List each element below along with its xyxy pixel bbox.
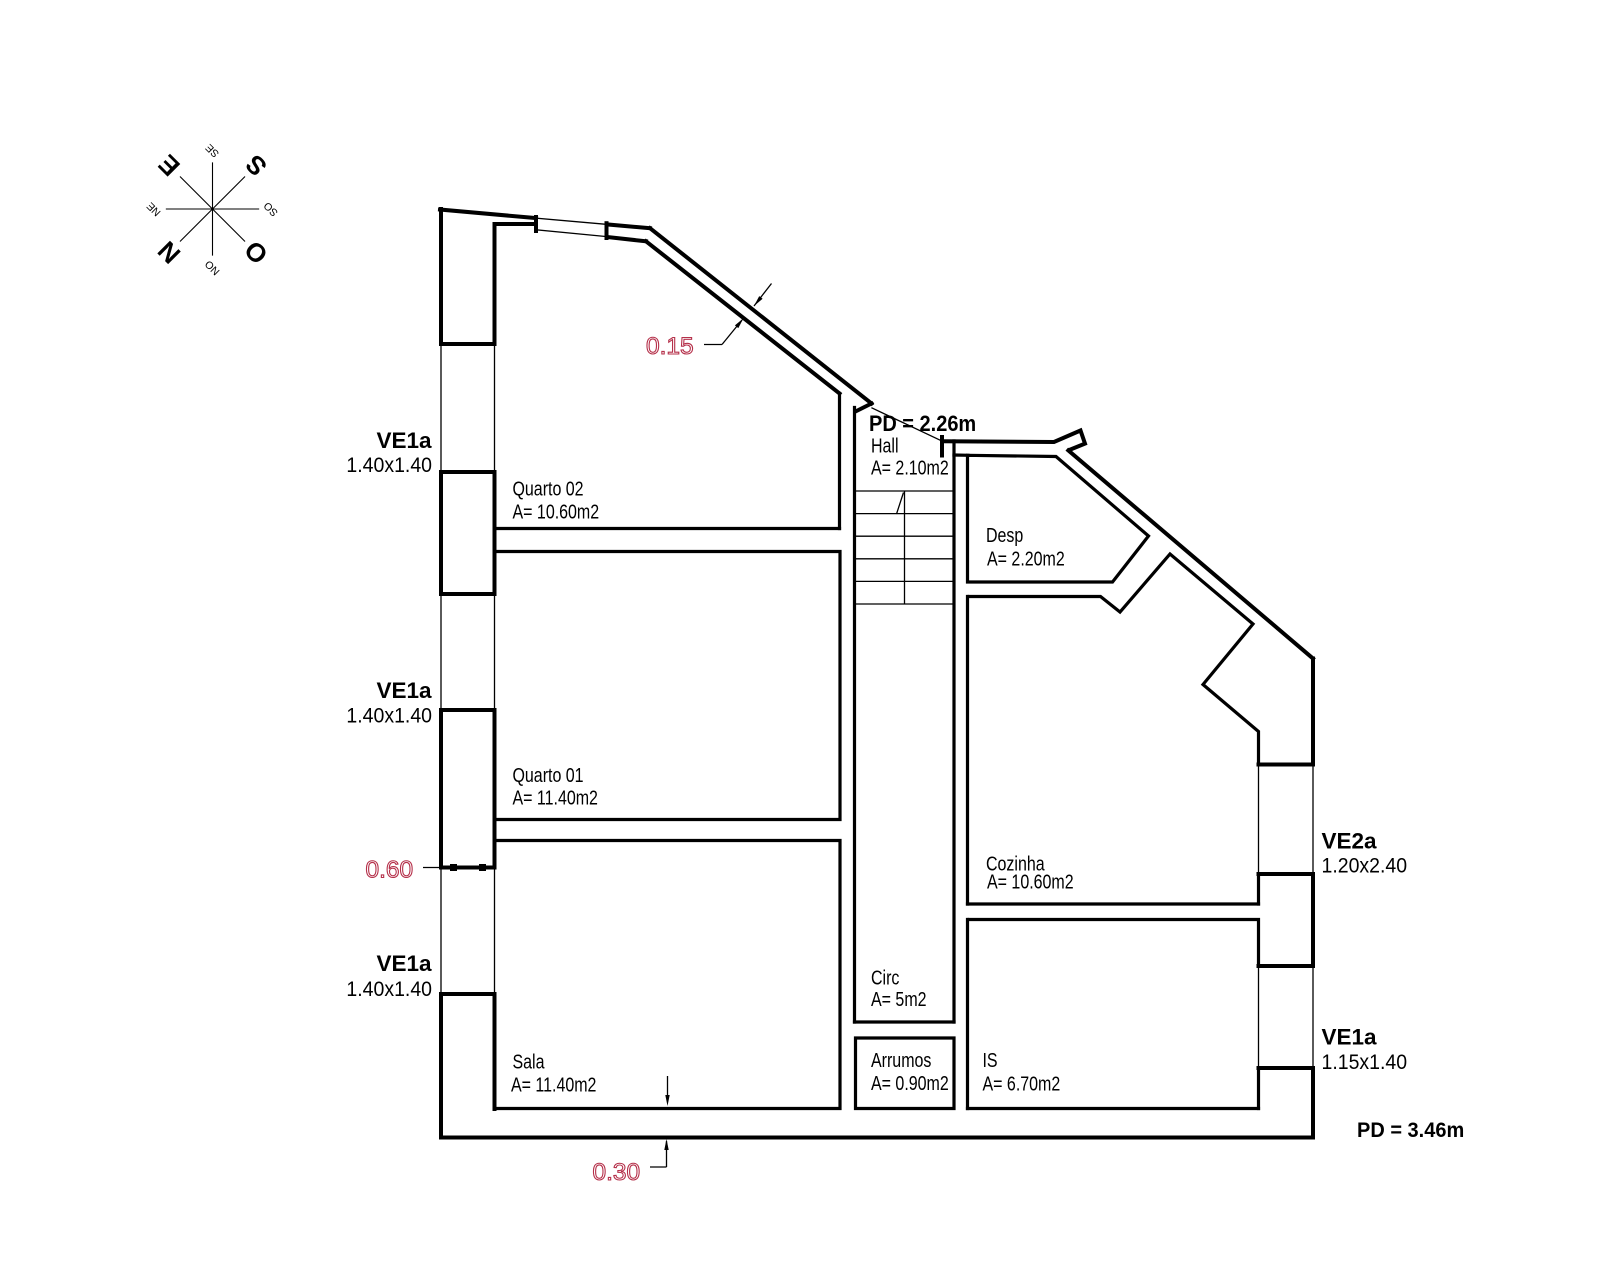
svg-text:A= 5m2: A= 5m2 [871,987,927,1010]
svg-text:PD = 3.46m: PD = 3.46m [1357,1119,1464,1143]
svg-text:0.15: 0.15 [646,333,694,360]
svg-text:Circ: Circ [871,966,899,989]
svg-text:1.40x1.40: 1.40x1.40 [346,453,432,477]
svg-text:A= 2.20m2: A= 2.20m2 [987,547,1065,570]
svg-text:Sala: Sala [513,1050,546,1073]
svg-text:A= 0.90m2: A= 0.90m2 [871,1071,949,1094]
svg-text:Desp: Desp [986,523,1023,546]
svg-text:VE1a: VE1a [376,428,432,453]
svg-text:1.20x2.40: 1.20x2.40 [1322,854,1408,878]
svg-text:A= 10.60m2: A= 10.60m2 [513,500,600,523]
svg-text:1.15x1.40: 1.15x1.40 [1322,1050,1408,1074]
svg-text:VE1a: VE1a [1322,1025,1378,1050]
svg-text:A= 11.40m2: A= 11.40m2 [511,1073,596,1096]
svg-text:Quarto 01: Quarto 01 [513,763,584,786]
svg-text:1.40x1.40: 1.40x1.40 [346,704,432,728]
svg-text:VE1a: VE1a [376,951,432,976]
svg-text:VE2a: VE2a [1322,829,1378,854]
svg-text:A= 11.40m2: A= 11.40m2 [513,786,598,809]
svg-text:A= 6.70m2: A= 6.70m2 [983,1072,1061,1095]
svg-text:0.60: 0.60 [366,857,414,884]
svg-text:1.40x1.40: 1.40x1.40 [346,977,432,1001]
svg-text:Hall: Hall [871,434,899,457]
svg-text:IS: IS [983,1048,998,1071]
svg-text:PD = 2.26m: PD = 2.26m [869,412,976,436]
svg-text:Arrumos: Arrumos [871,1048,931,1071]
svg-text:0.30: 0.30 [593,1159,641,1186]
svg-text:A= 2.10m2: A= 2.10m2 [871,456,949,479]
svg-text:A= 10.60m2: A= 10.60m2 [987,870,1074,893]
svg-text:Quarto 02: Quarto 02 [513,477,584,500]
svg-text:VE1a: VE1a [376,678,432,703]
